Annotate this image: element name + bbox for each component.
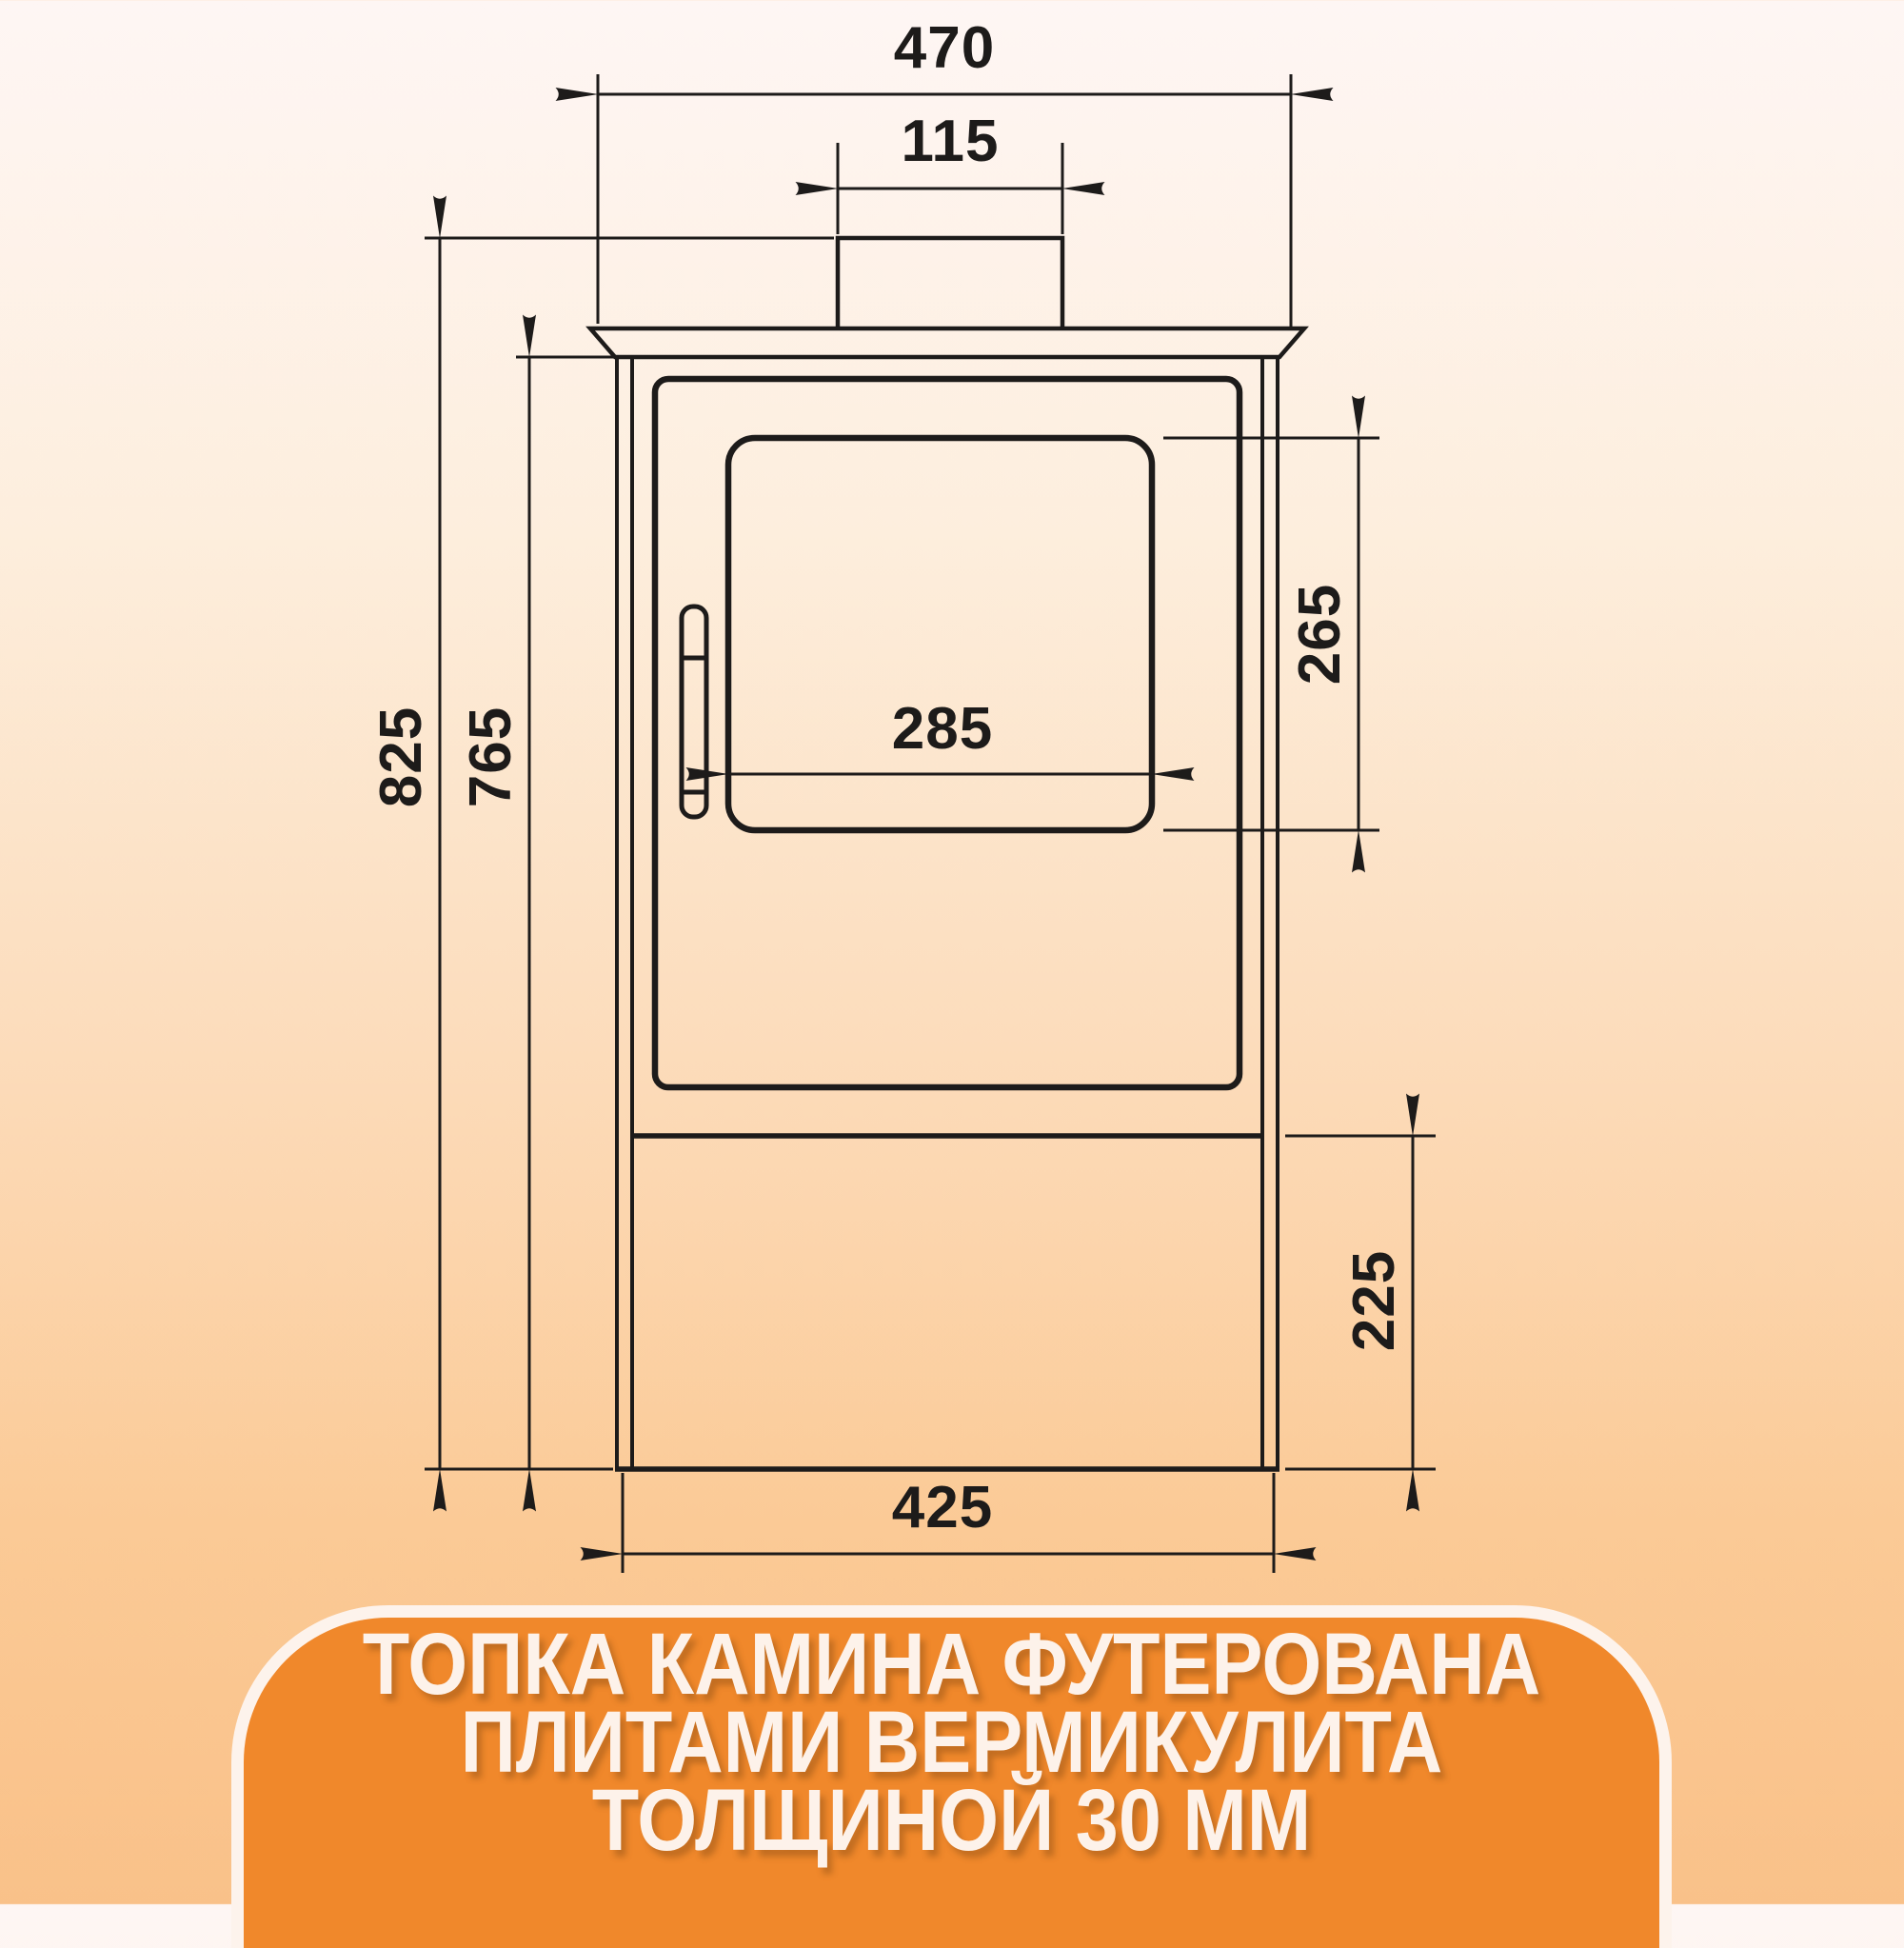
info-banner: ТОПКА КАМИНА ФУТЕРОВАНА ПЛИТАМИ ВЕРМИКУЛ…: [231, 1605, 1672, 1948]
door-handle: [682, 606, 706, 817]
banner-text-line3: ТОЛЩИНОЙ 30 ММ: [328, 1781, 1575, 1859]
dim-label-765: 765: [458, 706, 524, 807]
dim-label-225: 225: [1341, 1250, 1407, 1351]
product-infographic: { "meta": { "background_top_color": "#fe…: [0, 0, 1904, 1904]
top-plate: [590, 328, 1304, 357]
dim-label-825: 825: [368, 706, 434, 807]
dim-glass-width: 285: [728, 696, 1152, 774]
dimension-annotations: 470 115 825 765 265: [368, 15, 1436, 1573]
banner-text-line1: ТОПКА КАМИНА ФУТЕРОВАНА: [328, 1625, 1575, 1703]
dim-label-265: 265: [1287, 584, 1353, 685]
dim-label-285: 285: [892, 696, 993, 762]
dim-label-470: 470: [894, 15, 995, 81]
dim-total-height: 825: [368, 238, 834, 1469]
dim-body-width: 425: [623, 1473, 1274, 1573]
stove-structure: [590, 238, 1304, 1469]
glass-window: [728, 438, 1152, 830]
dim-body-height: 765: [458, 357, 613, 1469]
dim-label-115: 115: [901, 109, 999, 174]
banner-text-line2: ПЛИТАМИ ВЕРМИКУЛИТА: [328, 1703, 1575, 1781]
dim-base-height: 225: [1285, 1136, 1436, 1469]
flue-pipe: [838, 238, 1062, 328]
dim-flue-width: 115: [838, 109, 1062, 234]
dim-glass-height: 265: [1163, 438, 1379, 830]
dim-label-425: 425: [892, 1475, 993, 1541]
